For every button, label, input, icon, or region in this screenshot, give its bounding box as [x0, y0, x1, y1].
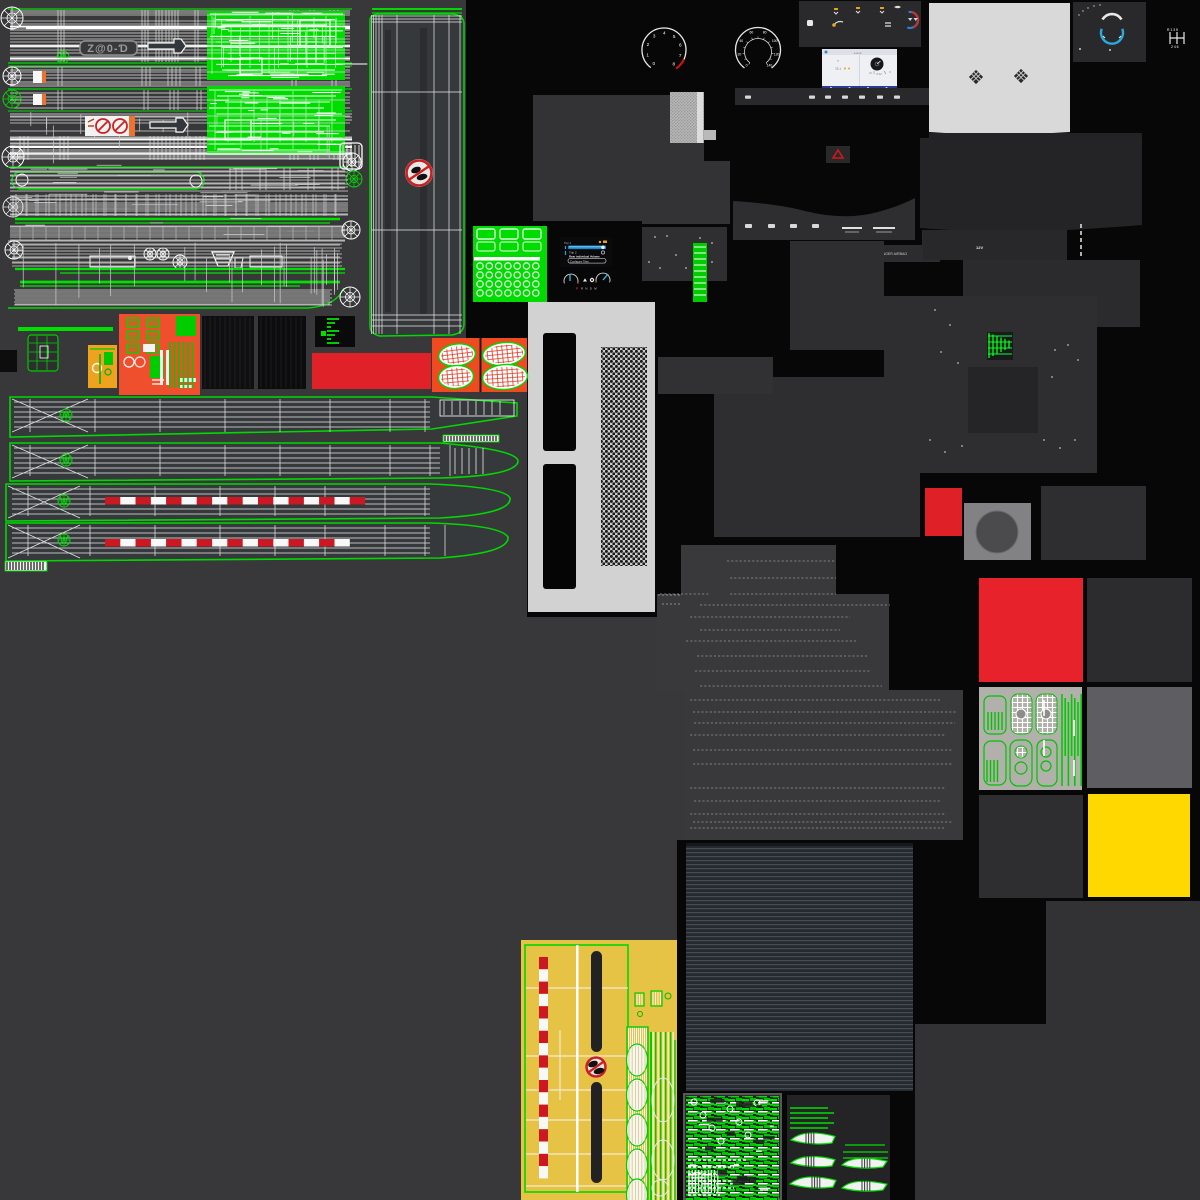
svg-text:4: 4	[663, 31, 666, 36]
svg-text:3: 3	[653, 34, 656, 39]
svg-text:7: 7	[679, 53, 682, 58]
svg-text:6: 6	[679, 43, 682, 48]
svg-text:2: 2	[647, 42, 650, 47]
svg-text:Configure Tiles: Configure Tiles	[570, 259, 589, 263]
svg-text:2 4 6: 2 4 6	[1171, 45, 1179, 49]
svg-text:0: 0	[746, 64, 748, 68]
svg-text:78.1: 78.1	[835, 67, 841, 71]
svg-text:120: 120	[774, 52, 780, 56]
svg-text:R N D M: R N D M	[581, 287, 597, 291]
svg-text:5: 5	[673, 34, 676, 39]
svg-text:☀: ☀	[837, 59, 840, 63]
svg-text:60: 60	[750, 31, 754, 35]
svg-text:8 32: 8 32	[876, 72, 882, 76]
svg-text:40: 40	[739, 39, 743, 43]
svg-text:100: 100	[772, 39, 778, 43]
svg-text:P: P	[576, 287, 578, 291]
svg-text:Trip 1: Trip 1	[564, 241, 571, 245]
svg-text:8: 8	[673, 61, 676, 66]
svg-text:Rear individual Volume: Rear individual Volume	[569, 255, 600, 259]
svg-text:80: 80	[763, 31, 767, 35]
svg-text:8:08 68°: 8:08 68°	[854, 53, 862, 55]
svg-text:20: 20	[738, 52, 742, 56]
svg-text:R 1 3 5: R 1 3 5	[1167, 28, 1178, 32]
svg-text:140: 140	[767, 64, 773, 68]
svg-text:1: 1	[646, 53, 649, 58]
svg-text:12V: 12V	[976, 245, 983, 250]
svg-text:0: 0	[653, 61, 656, 66]
svg-text:Z@0-Ɗ: Z@0-Ɗ	[87, 43, 128, 55]
